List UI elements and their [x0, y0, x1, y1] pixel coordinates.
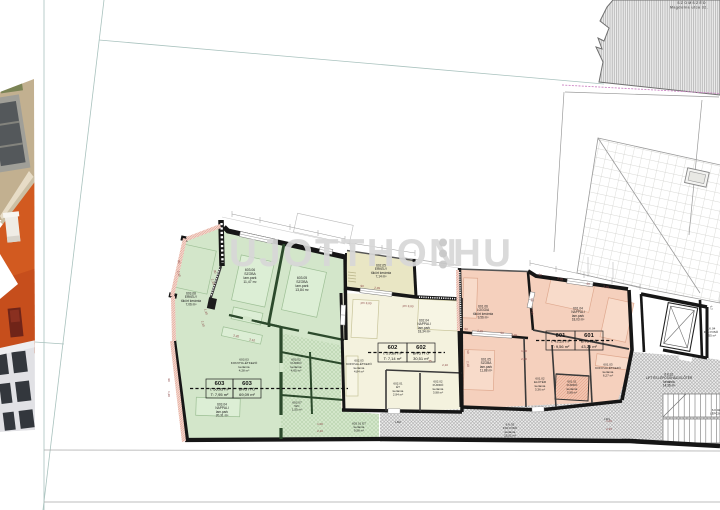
svg-text:90: 90 [500, 331, 504, 335]
svg-text:6.K.02LÉPCSŐ: 6.K.02LÉPCSŐ [710, 408, 720, 416]
svg-text:603.01 ETkerámia9,58 m²: 603.01 ETkerámia9,58 m² [352, 421, 366, 432]
svg-text:602.01ÉTkerámia2,94 m²: 602.01ÉTkerámia2,94 m² [393, 382, 404, 397]
svg-text:2,15: 2,15 [606, 427, 612, 431]
svg-text:T: 9,56 m²: T: 9,56 m² [552, 344, 570, 349]
svg-text:BRUTTÓ: BRUTTÓ [413, 351, 429, 356]
svg-text:601.04NAPPALIlam.park18,03 m²: 601.04NAPPALIlam.park18,03 m² [571, 306, 584, 321]
svg-text:BRUTTÓ: BRUTTÓ [581, 339, 597, 344]
svg-text:2,39: 2,39 [511, 333, 517, 337]
svg-text:90: 90 [464, 327, 468, 331]
svg-text:602.02FÜRDŐkerámia3,98 m²: 602.02FÜRDŐkerámia3,98 m² [433, 380, 444, 395]
svg-text:SZOMSZÉD: SZOMSZÉD [677, 0, 707, 5]
svg-text:90: 90 [167, 378, 171, 382]
svg-text:UJOTTHON: UJOTTHON [229, 232, 459, 275]
svg-text:T: 7,14 m²: T: 7,14 m² [384, 356, 402, 361]
svg-text:69,09 m²: 69,09 m² [239, 392, 255, 397]
svg-text:2,10: 2,10 [317, 429, 323, 433]
svg-text:75: 75 [428, 359, 432, 363]
svg-text:603.02FÜRDŐkerámia4,65 m²: 603.02FÜRDŐkerámia4,65 m² [290, 357, 302, 372]
svg-text:601.01FÜRDŐkerámia3,98 m²: 601.01FÜRDŐkerámia3,98 m² [567, 380, 578, 395]
svg-text:T: 7,95 m²: T: 7,95 m² [211, 392, 229, 397]
svg-text:2,39: 2,39 [477, 329, 483, 333]
svg-text:601.05SZOBAlam.park11,88 m²: 601.05SZOBAlam.park11,88 m² [480, 357, 493, 372]
svg-text:Magdolna utca 32.: Magdolna utca 32. [670, 6, 708, 10]
svg-text:30,51 m²: 30,51 m² [413, 356, 429, 361]
svg-text:2,10: 2,10 [466, 361, 471, 367]
svg-text:HU: HU [453, 232, 513, 275]
svg-text:1,00: 1,00 [317, 422, 323, 426]
svg-text:LI02: LI02 [395, 420, 401, 424]
svg-text:43,20 m²: 43,20 m² [581, 344, 597, 349]
svg-text:603.04NAPPALIlam.park20,31 m²: 603.04NAPPALIlam.park20,31 m² [215, 402, 228, 417]
svg-text:2,10: 2,10 [442, 363, 448, 367]
svg-text:602.04NAPPALIlam.park18,34 m²: 602.04NAPPALIlam.park18,34 m² [417, 318, 430, 333]
svg-text:pm 3,00: pm 3,00 [403, 304, 414, 309]
svg-text:pm 3,00: pm 3,00 [361, 301, 372, 306]
svg-text:2,39: 2,39 [374, 286, 381, 291]
svg-text:2,10: 2,10 [521, 357, 527, 361]
svg-text:1,00: 1,00 [521, 349, 527, 353]
svg-text:1,20: 1,20 [167, 391, 171, 397]
svg-text:LI01: LI01 [604, 417, 610, 421]
